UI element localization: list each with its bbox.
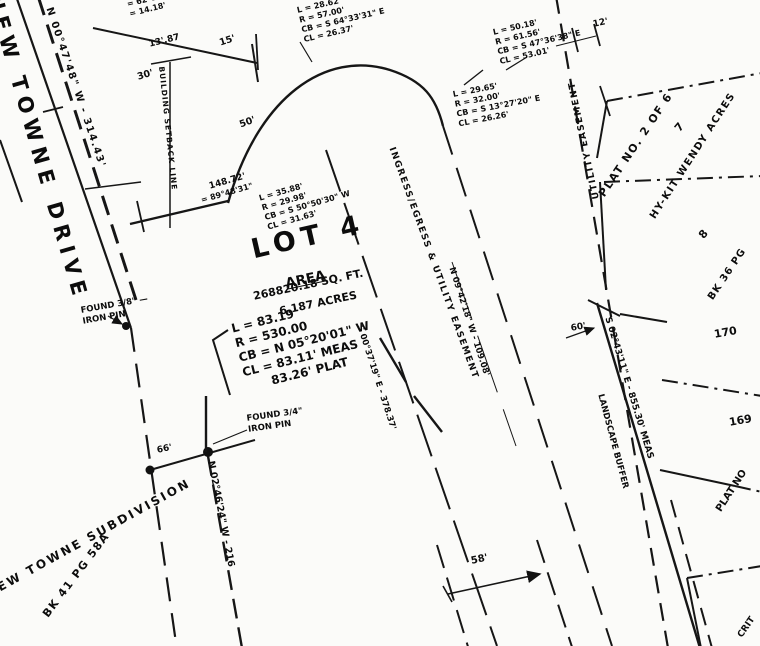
- bottom-dashed-line-b: [537, 540, 573, 646]
- dim-58-line: [448, 574, 540, 594]
- plat-linework: [0, 0, 760, 646]
- tangent-tick: [137, 201, 144, 232]
- pin34-leader: [213, 430, 247, 444]
- corridor-segment-b: [414, 396, 442, 432]
- curve3-leader: [464, 70, 483, 85]
- corner-dashdot-line: [687, 566, 760, 578]
- lot-170-169-divider: [662, 380, 760, 396]
- road-centerline: [38, 0, 136, 300]
- lot170-corner-line: [620, 314, 667, 322]
- bottom-dashed-line-a: [437, 545, 469, 646]
- iron-pin-34: [203, 447, 213, 457]
- corridor-right-edge: [443, 126, 612, 646]
- ne-lot-stub: [597, 101, 607, 158]
- curve1-leader: [300, 42, 312, 62]
- plat-sheet: NEW TOWNE DRIVE N 00°47'48" W - 314.43' …: [0, 0, 760, 646]
- road-tick-a: [43, 107, 63, 112]
- tangent-line: [130, 201, 228, 224]
- main-curve-bracket: [213, 330, 230, 395]
- lot-169-south-line: [660, 470, 735, 486]
- curve-leader-stub: [256, 34, 258, 70]
- east-boundary-tick: [588, 300, 620, 316]
- left-corner-segment: [0, 140, 22, 202]
- setback-stub: [85, 182, 141, 189]
- iron-pin-38: [122, 322, 130, 330]
- setback-top-tick: [151, 57, 191, 64]
- iron-pin-left: [146, 466, 155, 475]
